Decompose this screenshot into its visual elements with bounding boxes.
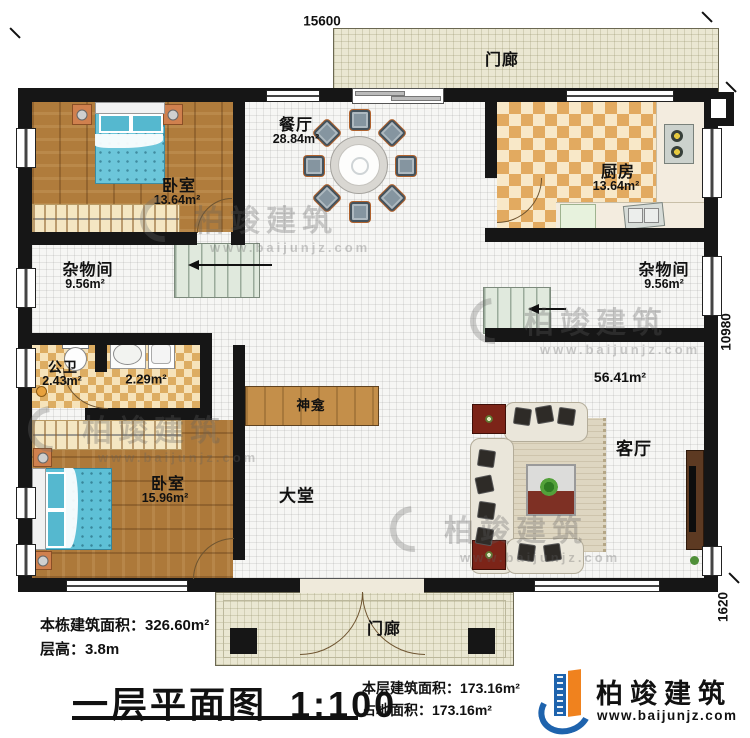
- window: [16, 487, 36, 519]
- logo-name: 柏竣建筑: [596, 672, 732, 711]
- pillow-icon: [99, 114, 131, 133]
- floor-area-text: 本层建筑面积：173.16m²: [362, 678, 520, 698]
- dim-tick: [728, 572, 739, 583]
- window: [16, 128, 36, 168]
- watermark-url: www.baijunjz.com: [540, 342, 700, 357]
- floor-plan: 15600 门廊: [0, 0, 750, 738]
- porch-bottom-label: 门廊: [367, 615, 401, 639]
- sliding-door: [352, 88, 444, 104]
- tv-icon: [689, 466, 696, 532]
- hall-label: 大堂: [279, 482, 315, 507]
- dim-tick: [9, 27, 20, 38]
- burner-icon: [671, 146, 683, 158]
- living-label: 客厅: [616, 435, 652, 460]
- wall-bath-top: [18, 333, 212, 345]
- sofa-cushion: [557, 407, 576, 426]
- dimension-right: 10980: [719, 313, 734, 351]
- watermark: 柏竣建筑 www.baijunjz.com: [140, 196, 370, 255]
- title-underline: [72, 716, 358, 720]
- building-area-text: 本栋建筑面积：326.60m²: [40, 614, 209, 635]
- logo-url: www.baijunjz.com: [597, 708, 738, 723]
- washing-machine-drum: [151, 344, 171, 364]
- storage-left-area: 9.56m²: [65, 277, 105, 291]
- wall-corner-niche: [711, 99, 726, 118]
- watermark-text: 柏竣建筑: [82, 406, 258, 450]
- window: [266, 90, 320, 102]
- fridge-icon: [560, 204, 596, 229]
- sofa-cushion: [513, 407, 532, 426]
- shrine-label: 神龛: [297, 394, 326, 414]
- watermark-logo-icon: [381, 497, 446, 562]
- dimension-bottom-right: 1620: [716, 592, 731, 622]
- window: [566, 90, 674, 102]
- window: [16, 268, 36, 308]
- watermark-logo-icon: [131, 187, 196, 252]
- watermark-text: 柏竣建筑: [194, 196, 370, 240]
- dining-table-center: [351, 157, 369, 175]
- porch-column: [468, 628, 495, 654]
- nightstand-icon: [72, 104, 92, 125]
- watermark-logo-icon: [461, 289, 526, 354]
- washroom-area: 2.29m²: [125, 372, 166, 387]
- window: [702, 128, 722, 198]
- watermark: 柏竣建筑 www.baijunjz.com: [390, 506, 620, 565]
- sink-basin: [644, 208, 659, 223]
- watermark-url: www.baijunjz.com: [210, 240, 370, 255]
- window: [702, 256, 722, 316]
- window: [16, 544, 36, 576]
- watermark-logo-icon: [19, 397, 84, 462]
- pillow-icon: [46, 472, 66, 510]
- sofa-cushion: [474, 474, 494, 494]
- plan-title: 一层平面图 1:100: [72, 676, 397, 728]
- kitchen-area: 13.64m²: [593, 179, 640, 193]
- porch-column: [230, 628, 257, 654]
- plant-icon: [540, 478, 558, 496]
- stairs-left-arrowhead: [188, 260, 199, 270]
- end-table-icon: [472, 404, 506, 434]
- footprint-text: 占地面积：173.16m²: [362, 700, 492, 720]
- logo-icon: [538, 668, 590, 728]
- chair-icon: [350, 110, 370, 130]
- dim-tick: [701, 11, 712, 22]
- chair-icon: [396, 156, 416, 176]
- window: [534, 580, 660, 592]
- floor-height-text: 层高：3.8m: [40, 638, 119, 659]
- entry-door-opening: [300, 578, 424, 593]
- dining-area: 28.84m²: [273, 132, 320, 146]
- pillow-icon: [46, 510, 66, 548]
- wall-bath-divider: [95, 333, 107, 372]
- storage-right-area: 9.56m²: [644, 277, 684, 291]
- chair-icon: [304, 156, 324, 176]
- pillow-icon: [131, 114, 163, 133]
- window: [16, 348, 36, 388]
- watermark: 柏竣建筑 www.baijunjz.com: [28, 406, 258, 465]
- porch-top: [333, 28, 719, 92]
- dimension-top: 15600: [303, 14, 341, 29]
- watermark-url: www.baijunjz.com: [460, 550, 620, 565]
- sink-basin: [628, 208, 643, 223]
- sofa-cushion: [535, 405, 555, 425]
- window: [702, 546, 722, 576]
- bed-headboard: [95, 102, 165, 114]
- bedroom2-area: 15.96m²: [142, 491, 189, 505]
- living-area: 56.41m²: [594, 369, 646, 385]
- watermark-text: 柏竣建筑: [444, 506, 620, 550]
- porch-top-label: 门廊: [485, 46, 519, 70]
- wall-kitchen-bottom: [485, 228, 704, 242]
- watermark-text: 柏竣建筑: [524, 298, 700, 342]
- stairs-left-arrow: [198, 264, 272, 266]
- window: [66, 580, 188, 592]
- bathroom-area: 2.43m²: [42, 374, 82, 388]
- burner-icon: [671, 130, 683, 142]
- sofa-cushion: [477, 449, 496, 468]
- washbasin-icon: [113, 343, 142, 365]
- nightstand-icon: [163, 104, 183, 125]
- plant-small-icon: [690, 556, 699, 565]
- watermark-url: www.baijunjz.com: [98, 450, 258, 465]
- watermark: 柏竣建筑 www.baijunjz.com: [470, 298, 700, 357]
- wall-kitchen-left: [485, 102, 497, 178]
